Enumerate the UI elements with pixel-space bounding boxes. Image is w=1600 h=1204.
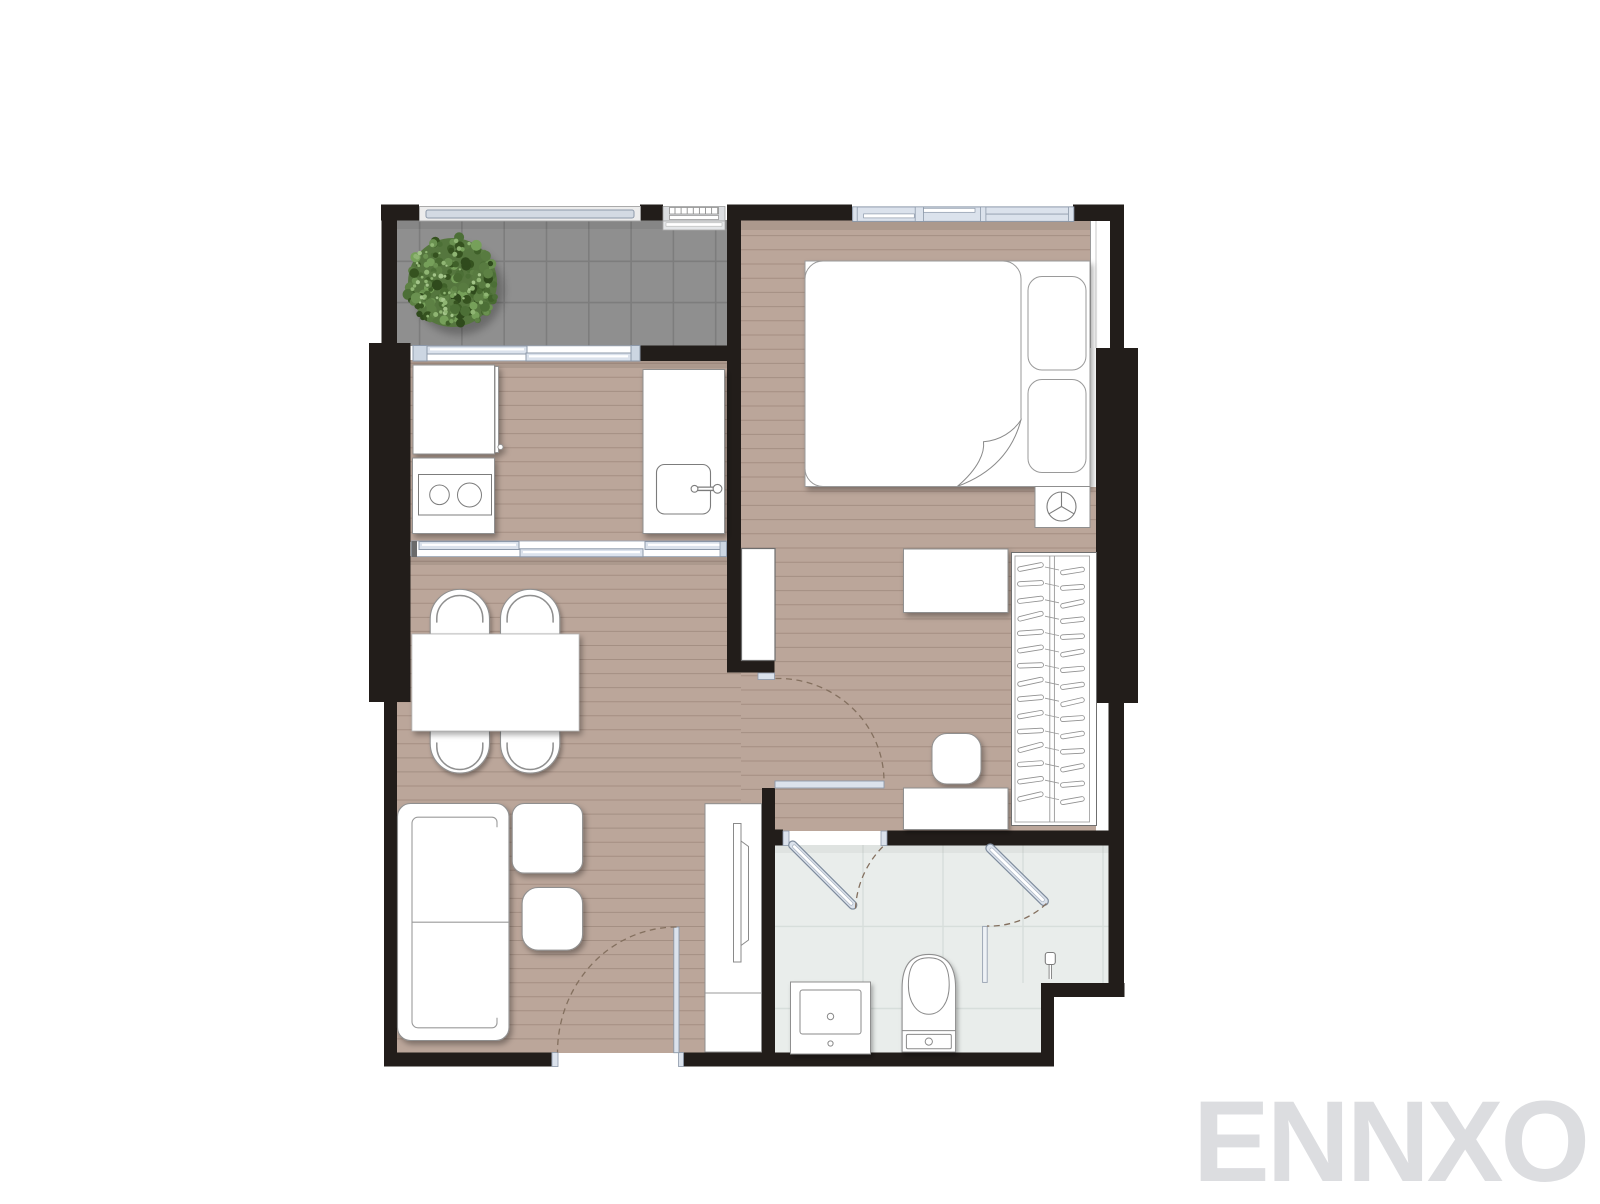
svg-text:ENNXO: ENNXO	[1193, 1078, 1587, 1204]
